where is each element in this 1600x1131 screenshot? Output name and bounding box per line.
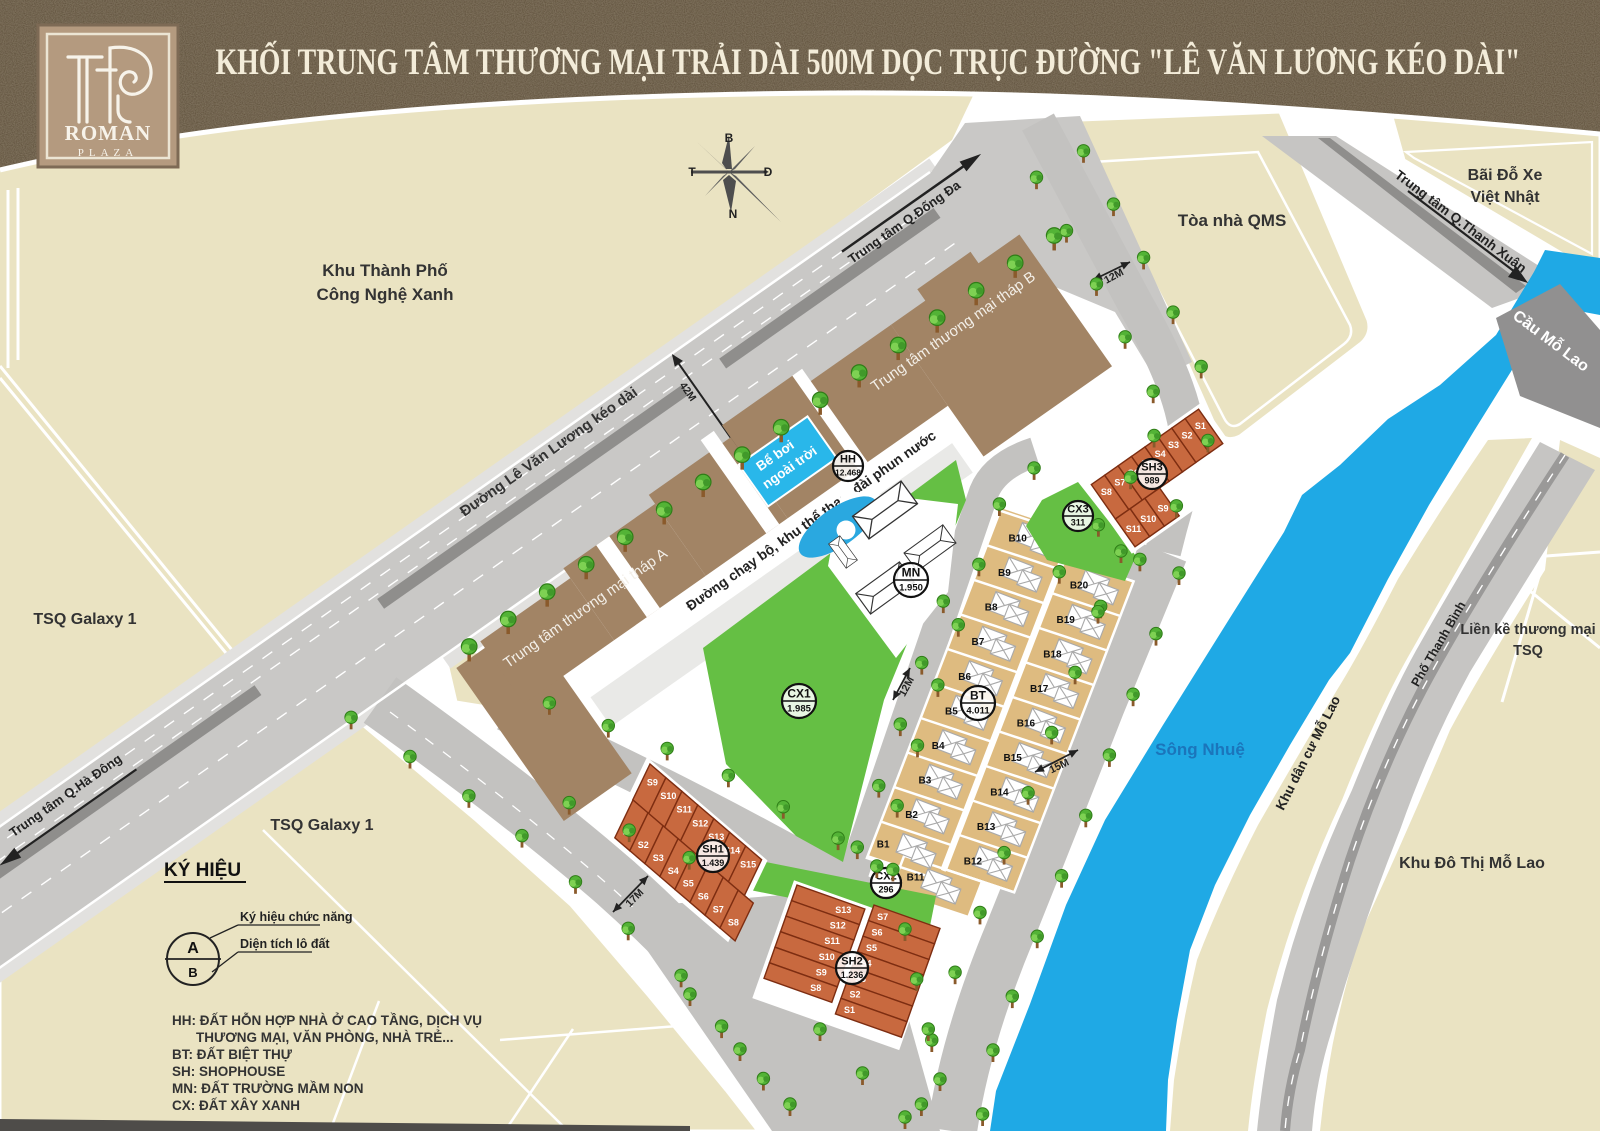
svg-text:S11: S11 bbox=[677, 805, 693, 815]
svg-text:Đ: Đ bbox=[764, 165, 773, 179]
svg-text:Bãi Đỗ Xe: Bãi Đỗ Xe bbox=[1468, 165, 1543, 184]
svg-text:S7: S7 bbox=[713, 905, 724, 915]
svg-text:CX3: CX3 bbox=[1067, 504, 1088, 516]
svg-text:N: N bbox=[729, 207, 738, 221]
svg-text:MN: ĐẤT TRƯỜNG MẦM NON: MN: ĐẤT TRƯỜNG MẦM NON bbox=[172, 1081, 363, 1096]
svg-text:B9: B9 bbox=[998, 568, 1011, 579]
svg-text:Diện tích lô đất: Diện tích lô đất bbox=[240, 937, 330, 951]
svg-text:T: T bbox=[688, 165, 696, 179]
svg-text:B15: B15 bbox=[1004, 753, 1023, 764]
svg-text:S13: S13 bbox=[835, 905, 851, 915]
svg-text:B16: B16 bbox=[1017, 719, 1036, 730]
svg-text:KÝ HIỆU: KÝ HIỆU bbox=[164, 859, 241, 881]
svg-text:SH3: SH3 bbox=[1141, 462, 1162, 474]
svg-text:TSQ: TSQ bbox=[1513, 643, 1543, 659]
svg-text:SH2: SH2 bbox=[841, 956, 862, 968]
svg-text:B11: B11 bbox=[907, 872, 925, 883]
svg-text:1.236: 1.236 bbox=[841, 970, 864, 980]
svg-text:CX1: CX1 bbox=[787, 687, 811, 701]
svg-text:B18: B18 bbox=[1043, 649, 1062, 660]
svg-text:B17: B17 bbox=[1030, 684, 1049, 695]
svg-text:S10: S10 bbox=[1140, 514, 1156, 524]
svg-text:S9: S9 bbox=[816, 967, 827, 977]
svg-text:S5: S5 bbox=[683, 879, 694, 889]
svg-text:S1: S1 bbox=[1195, 421, 1206, 431]
svg-text:S15: S15 bbox=[740, 859, 756, 869]
svg-text:S8: S8 bbox=[728, 917, 739, 927]
svg-text:BT: ĐẤT BIỆT THỰ: BT: ĐẤT BIỆT THỰ bbox=[172, 1047, 293, 1062]
svg-text:B2: B2 bbox=[905, 810, 918, 821]
svg-text:Khu Đô Thị Mỗ Lao: Khu Đô Thị Mỗ Lao bbox=[1399, 853, 1545, 872]
svg-text:S4: S4 bbox=[1155, 449, 1166, 459]
svg-text:S3: S3 bbox=[653, 853, 664, 863]
svg-text:Khu Thành Phố: Khu Thành Phố bbox=[322, 261, 448, 280]
svg-text:B3: B3 bbox=[919, 775, 932, 786]
svg-text:S2: S2 bbox=[849, 990, 860, 1000]
svg-text:S5: S5 bbox=[866, 943, 877, 953]
svg-text:B: B bbox=[188, 965, 197, 980]
svg-text:B8: B8 bbox=[985, 603, 998, 614]
svg-text:311: 311 bbox=[1071, 517, 1086, 527]
svg-text:1.950: 1.950 bbox=[899, 583, 923, 594]
svg-text:1.985: 1.985 bbox=[787, 704, 811, 715]
svg-text:989: 989 bbox=[1144, 475, 1159, 485]
svg-text:B4: B4 bbox=[932, 741, 945, 752]
svg-text:S12: S12 bbox=[830, 921, 846, 931]
svg-text:S7: S7 bbox=[1114, 478, 1125, 488]
svg-text:S2: S2 bbox=[1181, 430, 1192, 440]
svg-text:HH: ĐẤT HỖN HỢP NHÀ Ở CAO TẦNG: HH: ĐẤT HỖN HỢP NHÀ Ở CAO TẦNG, DỊCH VỤ bbox=[172, 1013, 482, 1028]
svg-text:296: 296 bbox=[878, 884, 893, 894]
svg-text:B14: B14 bbox=[990, 788, 1009, 799]
svg-text:HH: HH bbox=[840, 454, 856, 466]
svg-text:TSQ Galaxy 1: TSQ Galaxy 1 bbox=[33, 611, 136, 628]
svg-text:S1: S1 bbox=[844, 1005, 855, 1015]
svg-text:S6: S6 bbox=[871, 927, 882, 937]
svg-text:CX: ĐẤT XÂY XANH: CX: ĐẤT XÂY XANH bbox=[172, 1098, 300, 1113]
svg-text:S3: S3 bbox=[1168, 440, 1179, 450]
svg-text:B20: B20 bbox=[1070, 580, 1089, 591]
svg-text:B10: B10 bbox=[1009, 534, 1028, 545]
svg-text:B: B bbox=[725, 131, 734, 145]
svg-text:Công Nghệ Xanh: Công Nghệ Xanh bbox=[317, 285, 454, 304]
svg-text:KHỐI TRUNG TÂM THƯƠNG MẠI TRẢI: KHỐI TRUNG TÂM THƯƠNG MẠI TRẢI DÀI 500M … bbox=[216, 39, 1521, 83]
svg-text:S11: S11 bbox=[824, 936, 840, 946]
svg-text:S12: S12 bbox=[692, 818, 708, 828]
svg-text:A: A bbox=[187, 940, 199, 957]
svg-text:BT: BT bbox=[970, 689, 987, 703]
svg-text:S8: S8 bbox=[1101, 487, 1112, 497]
svg-text:MN: MN bbox=[902, 566, 921, 580]
svg-text:S8: S8 bbox=[810, 983, 821, 993]
svg-text:S6: S6 bbox=[698, 892, 709, 902]
svg-text:ROMAN: ROMAN bbox=[65, 121, 152, 145]
svg-text:B19: B19 bbox=[1057, 615, 1076, 626]
svg-text:B5: B5 bbox=[945, 706, 958, 717]
svg-text:4.011: 4.011 bbox=[966, 706, 990, 717]
svg-text:B6: B6 bbox=[958, 672, 971, 683]
svg-text:TSQ Galaxy 1: TSQ Galaxy 1 bbox=[270, 817, 373, 834]
svg-text:Việt Nhật: Việt Nhật bbox=[1470, 189, 1540, 206]
svg-text:Ký hiệu chức năng: Ký hiệu chức năng bbox=[240, 910, 353, 924]
svg-text:S11: S11 bbox=[1126, 524, 1142, 534]
svg-text:S4: S4 bbox=[668, 866, 679, 876]
svg-text:SH1: SH1 bbox=[702, 844, 723, 856]
svg-text:B7: B7 bbox=[972, 637, 985, 648]
svg-text:PLAZA: PLAZA bbox=[78, 147, 138, 159]
svg-text:THƯƠNG MẠI, VĂN PHÒNG, NHÀ TRẺ: THƯƠNG MẠI, VĂN PHÒNG, NHÀ TRẺ... bbox=[196, 1030, 453, 1045]
svg-text:1.439: 1.439 bbox=[702, 858, 725, 868]
svg-text:S10: S10 bbox=[660, 791, 676, 801]
svg-text:B12: B12 bbox=[964, 857, 983, 868]
svg-text:S9: S9 bbox=[647, 777, 658, 787]
svg-text:12.468: 12.468 bbox=[835, 467, 861, 477]
svg-text:Liền kề thương mại: Liền kề thương mại bbox=[1460, 622, 1595, 638]
svg-text:B1: B1 bbox=[877, 839, 890, 850]
svg-text:Tòa nhà QMS: Tòa nhà QMS bbox=[1178, 211, 1287, 230]
svg-text:SH: SHOPHOUSE: SH: SHOPHOUSE bbox=[172, 1064, 285, 1079]
svg-text:S10: S10 bbox=[819, 952, 835, 962]
svg-text:B13: B13 bbox=[977, 822, 996, 833]
svg-text:S7: S7 bbox=[877, 912, 888, 922]
svg-text:S2: S2 bbox=[638, 840, 649, 850]
svg-text:Sông Nhuệ: Sông Nhuệ bbox=[1155, 740, 1245, 759]
svg-text:S9: S9 bbox=[1157, 503, 1168, 513]
